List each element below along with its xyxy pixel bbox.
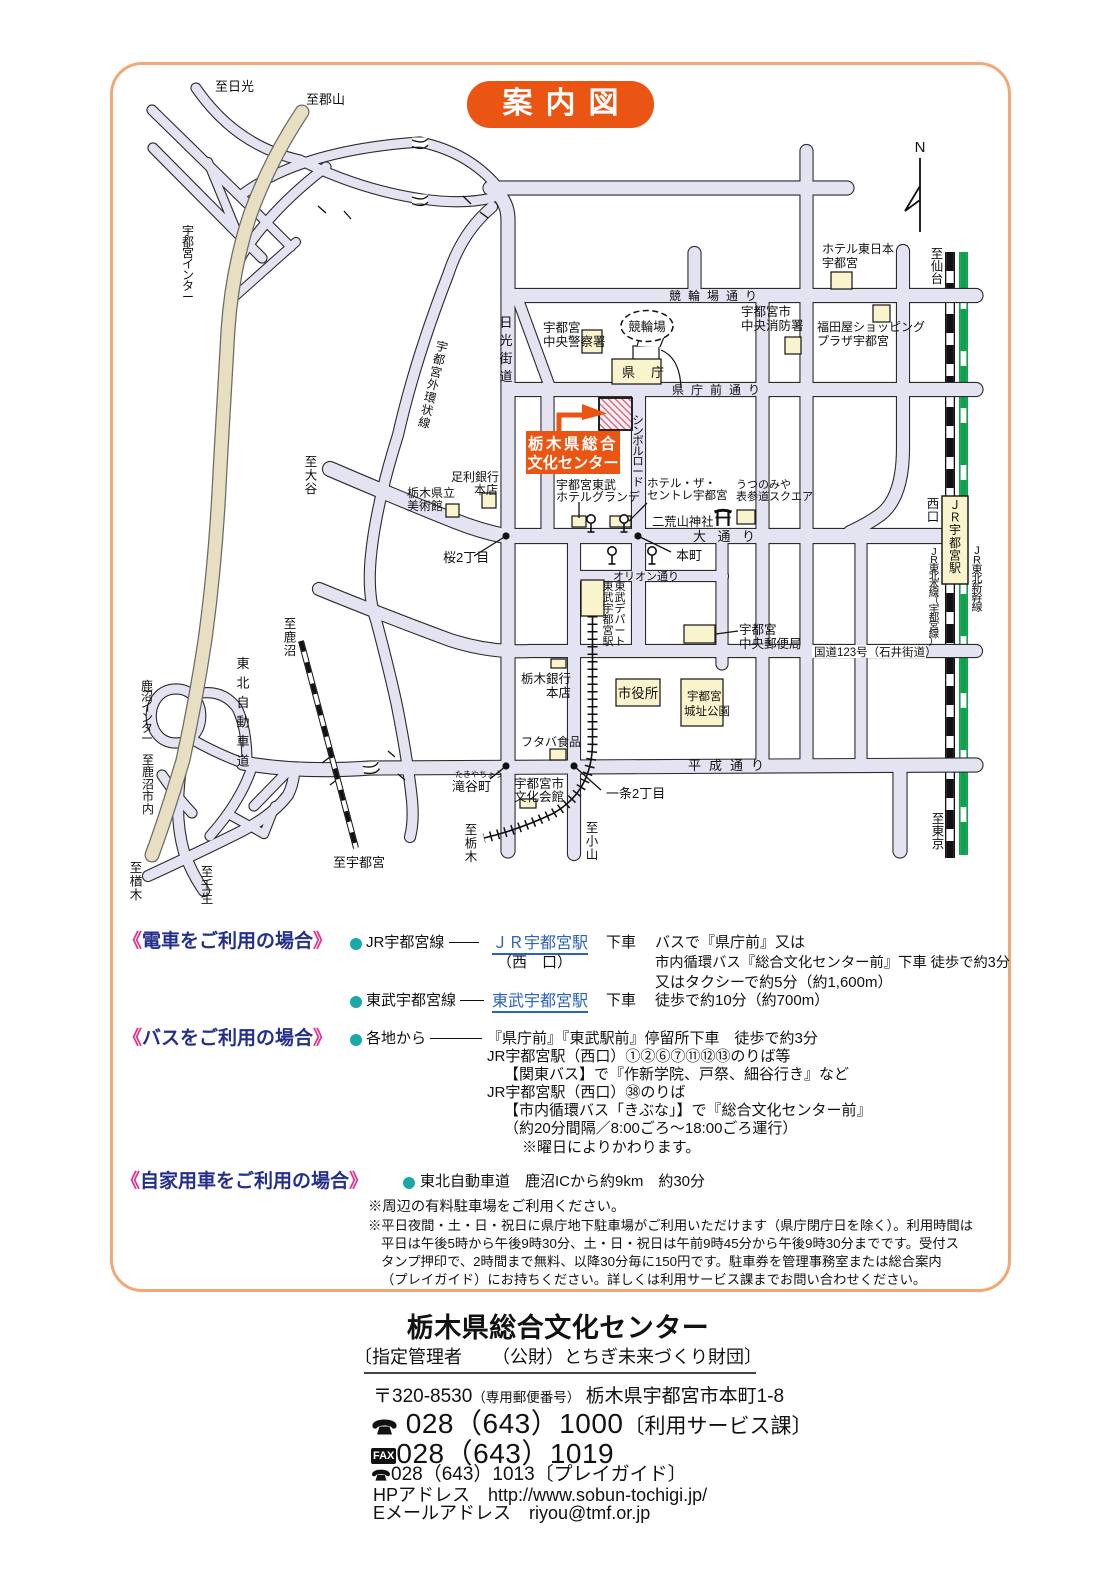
svg-text:県庁: 県庁 [622, 365, 680, 380]
svg-text:一条2丁目: 一条2丁目 [606, 786, 665, 801]
svg-text:宇都宮: 宇都宮 [822, 255, 858, 270]
svg-text:競輪場通り: 競輪場通り [669, 288, 764, 303]
svg-text:至東京: 至東京 [932, 812, 945, 851]
svg-text:文化会館: 文化会館 [514, 789, 564, 804]
svg-text:東武デパート: 東武デパート [615, 580, 626, 648]
svg-text:平成通り: 平成通り [688, 758, 772, 773]
svg-text:宇都宮: 宇都宮 [739, 622, 777, 637]
svg-text:足利銀行: 足利銀行 [451, 470, 499, 484]
svg-text:至鹿沼市内: 至鹿沼市内 [142, 753, 154, 816]
svg-text:至宇都宮: 至宇都宮 [333, 855, 385, 870]
svg-text:宇都宮: 宇都宮 [687, 689, 722, 703]
svg-text:N: N [915, 139, 926, 156]
svg-text:JR東北本線（宇都宮線）: JR東北本線（宇都宮線） [929, 546, 940, 648]
svg-text:鹿沼インター: 鹿沼インター [141, 678, 153, 746]
svg-text:宇都宮市: 宇都宮市 [514, 776, 564, 791]
svg-text:市役所: 市役所 [618, 685, 659, 701]
svg-text:栃木県総合: 栃木県総合 [528, 434, 618, 453]
svg-text:ホテル・ザ・: ホテル・ザ・ [647, 477, 716, 490]
svg-text:至仙台: 至仙台 [931, 247, 944, 286]
svg-text:中央郵便局: 中央郵便局 [739, 636, 802, 651]
svg-text:至小山: 至小山 [586, 821, 599, 862]
svg-text:本町: 本町 [676, 548, 702, 563]
svg-text:栃木銀行: 栃木銀行 [521, 672, 571, 686]
svg-text:うつのみや: うつのみや [736, 478, 791, 491]
svg-text:JR東北新幹線: JR東北新幹線 [972, 545, 983, 613]
svg-text:文化センター: 文化センター [527, 454, 618, 472]
svg-text:至鹿沼: 至鹿沼 [284, 617, 297, 658]
svg-text:フタバ食品: フタバ食品 [521, 734, 581, 749]
svg-text:宇都宮: 宇都宮 [543, 320, 581, 335]
svg-text:西口: 西口 [927, 497, 940, 524]
svg-text:ホテル東日本: ホテル東日本 [822, 242, 894, 256]
svg-text:至栃木: 至栃木 [465, 823, 478, 864]
svg-text:桜2丁目: 桜2丁目 [443, 550, 489, 565]
svg-text:本店: 本店 [474, 483, 498, 497]
svg-text:競輪場: 競輪場 [628, 319, 666, 334]
svg-text:シンボルロード: シンボルロード [632, 415, 644, 489]
svg-text:至楢木: 至楢木 [130, 861, 143, 902]
svg-text:宇都宮市: 宇都宮市 [741, 304, 791, 319]
svg-text:栃木県立: 栃木県立 [407, 485, 455, 500]
svg-text:国道123号（石井街道）: 国道123号（石井街道） [814, 645, 937, 659]
svg-text:プラザ宇都宮: プラザ宇都宮 [817, 333, 889, 348]
svg-text:至大谷: 至大谷 [305, 455, 318, 496]
svg-text:セントレ宇都宮: セントレ宇都宮 [647, 488, 728, 502]
svg-text:中央警察署: 中央警察署 [543, 334, 606, 349]
svg-text:福田屋ショッピング: 福田屋ショッピング [817, 319, 925, 334]
svg-text:宇都宮インター: 宇都宮インター [182, 224, 194, 304]
svg-text:中央消防署: 中央消防署 [741, 318, 804, 333]
svg-text:二荒山神社: 二荒山神社 [652, 514, 714, 529]
svg-text:美術館: 美術館 [407, 498, 443, 513]
svg-text:至日光: 至日光 [215, 79, 254, 94]
svg-text:本店: 本店 [546, 686, 571, 700]
svg-text:至郡山: 至郡山 [306, 92, 345, 107]
svg-text:滝谷町: 滝谷町 [452, 779, 491, 794]
svg-text:表参道スクエア: 表参道スクエア [736, 489, 813, 503]
svg-text:東武宇都宮駅: 東武宇都宮駅 [603, 580, 614, 648]
svg-text:ＪＲ宇都宮駅: ＪＲ宇都宮駅 [949, 498, 961, 575]
svg-text:大通り: 大通り [693, 529, 767, 544]
svg-text:県庁前通り: 県庁前通り [672, 382, 767, 397]
svg-text:至壬生: 至壬生 [201, 865, 214, 906]
svg-text:城址公園: 城址公園 [684, 704, 730, 718]
svg-text:ホテルグランデ: ホテルグランデ [556, 489, 640, 504]
svg-text:たきやちょう: たきやちょう [455, 770, 503, 779]
